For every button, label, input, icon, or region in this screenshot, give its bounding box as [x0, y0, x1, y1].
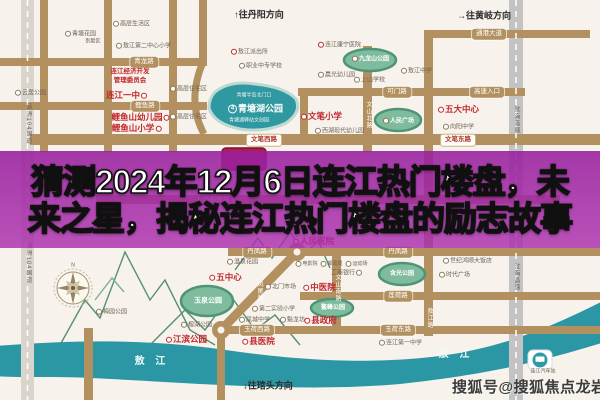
poi-label: 北门市场 — [264, 284, 296, 291]
poi-label: 高层住宅区 — [169, 86, 207, 93]
poi-badge-icon — [170, 86, 176, 92]
poi-label: 温泉花园 — [226, 259, 258, 266]
poi-badge-icon — [320, 261, 326, 267]
road-label-vertical: 沈海高速 — [513, 263, 519, 291]
road-label-vertical: 文山北路 — [365, 101, 371, 129]
poi-badge-icon — [315, 128, 321, 134]
poi-label: 连江第一中学 — [378, 340, 422, 347]
poi-badge-icon — [318, 42, 324, 48]
road-pill: 青龙路 — [130, 57, 158, 68]
poi-label: 鳌峰公园 — [321, 305, 345, 311]
poi-label: 文笔小学 — [300, 112, 342, 121]
poi-label: 连江一中 — [106, 91, 148, 100]
poi-label: 西湖现代幼儿园 — [314, 128, 364, 135]
poi-label: 梅园公园 — [95, 309, 127, 316]
poi-label: 敖江第二中心小学 — [115, 43, 171, 50]
poi-label: 连江经济开发 — [111, 69, 150, 76]
road-pill: 文笔东路 — [440, 134, 476, 147]
poi-badge-icon — [443, 124, 449, 130]
poi-label: 青塘花园 — [64, 31, 96, 38]
road-label-vertical: 凤尾路 — [256, 281, 262, 302]
road-pill: 鲤鱼路 — [131, 101, 159, 112]
road-label-vertical: 瀛洲104国道 — [25, 103, 31, 144]
poi-label: 玉泉公园 — [194, 298, 222, 305]
poi-badge-icon — [209, 275, 215, 281]
poi-label: 时代广场 — [438, 272, 470, 279]
poi-label: 江滨公园 — [165, 335, 207, 344]
poi-label: 中医院 — [302, 283, 336, 292]
poi-badge-icon — [181, 322, 187, 328]
poi-badge-icon — [383, 118, 389, 124]
poi-badge-icon — [116, 43, 122, 49]
poi-label: 五大中心 — [437, 105, 479, 114]
poi-label: 人民广场 — [382, 118, 414, 125]
poi-label: 别墅区 — [85, 40, 100, 45]
road-pill: 通港大道 — [472, 29, 506, 40]
poi-badge-icon — [65, 31, 71, 37]
poi-label: 敖江派出所 — [230, 49, 268, 56]
poi-label: 管理委员会 — [114, 78, 147, 85]
poi-badge-icon — [15, 90, 21, 96]
river-label: 敖 江 — [439, 350, 474, 360]
poi-badge-icon — [155, 126, 161, 132]
poi-badge-icon — [170, 114, 176, 120]
road-pill: 可门路 — [383, 87, 411, 98]
poi-badge-icon — [379, 340, 385, 346]
direction-label: ↓往琯头方向 — [243, 382, 293, 391]
road-pill: 高速入口 — [470, 87, 504, 98]
poi-badge-icon — [231, 49, 237, 55]
poi-badge-icon — [354, 77, 360, 83]
poi-badge-icon — [318, 72, 324, 78]
poi-label: 鲤鱼山小学 — [112, 124, 163, 133]
poi-label: 含光公园 — [390, 271, 414, 277]
poi-badge-icon — [96, 309, 102, 315]
poi-label: 青塘湖驿站文创园 — [229, 119, 269, 124]
poi-label: 职业中专学校 — [238, 63, 282, 70]
poi-label: 连江汽车站 — [530, 370, 555, 375]
poi-label: 鲤鱼山幼儿园 — [111, 113, 170, 122]
poi-label: 高层住宅区 — [169, 114, 207, 121]
poi-label: 高层生活区 — [112, 21, 150, 28]
river-label: 敖 江 — [135, 357, 170, 367]
poi-badge-icon — [356, 270, 362, 276]
poi-label: 魁龙坊 — [279, 317, 305, 324]
poi-label: 晨光幼儿园 — [317, 72, 355, 79]
road-pill: 玉荷西路 — [240, 325, 274, 336]
poi-label: 凤城中学 — [238, 317, 270, 324]
poi-label: 敖江中学 — [400, 68, 432, 75]
poi-badge-icon — [265, 284, 271, 290]
poi-badge-icon — [239, 63, 245, 69]
sohu-watermark: 搜狐号@搜狐焦点龙岩站 — [452, 376, 600, 397]
poi-label: 世纪鸿顺大饭店 — [442, 258, 492, 265]
poi-label: 4青塘湖公园 — [227, 104, 283, 113]
poi-badge-icon — [141, 93, 147, 99]
road-pill: 文笔西路 — [246, 134, 282, 147]
poi-label: 运动场 — [344, 261, 367, 267]
poi-label: 云居公园 — [14, 90, 46, 97]
poi-label: 工商银行 — [331, 270, 363, 277]
overlay-banner: 猜测2024年12月6日连江热门楼盘，未 来之星，揭秘连江热门楼盘的励志故事 — [0, 151, 600, 248]
poi-label: 县政府 — [303, 316, 337, 325]
poi-badge-icon — [295, 261, 301, 267]
road-label-vertical: 沈海高速 — [513, 106, 519, 134]
poi-badge-icon — [239, 317, 245, 323]
banner-title-line2: 来之星，揭秘连江热门楼盘的励志故事 — [28, 200, 572, 237]
poi-label: 青塘半岛北门口 — [236, 94, 271, 99]
poi-label: 九龙山公园 — [351, 56, 389, 63]
poi-badge-icon — [166, 337, 172, 343]
direction-label: ↑往丹阳方向 — [234, 11, 284, 20]
poi-label: 五中心 — [208, 273, 242, 282]
poi-badge-icon — [443, 258, 449, 264]
road-pill: 丹凤路 — [243, 247, 271, 258]
poi-label: 向阳中学 — [442, 124, 474, 131]
poi-badge-icon — [252, 306, 258, 312]
poi-badge-icon — [301, 114, 307, 120]
poi-badge-icon — [227, 259, 233, 265]
road-pill: 玉荷东路 — [381, 325, 415, 336]
road-pill: 丹凤路 — [384, 247, 412, 258]
poi-badge-icon — [242, 339, 248, 345]
poi-badge-icon — [345, 261, 351, 267]
poi-label: 电影院 — [294, 261, 317, 267]
poi-badge-icon — [304, 318, 310, 324]
banner-title-line1: 猜测2024年12月6日连江热门楼盘，未 — [31, 163, 568, 200]
poi-badge-icon — [438, 107, 444, 113]
poi-badge-icon — [303, 285, 309, 291]
poi-badge-icon — [352, 56, 358, 62]
poi-label: N — [71, 264, 75, 269]
lianjiang-map-screenshot: 青龙路鲤鱼路通港大道可门路高速入口马祖西路马祖路丹凤路丹凤路莲荷路玉荷西路玉荷东… — [0, 0, 600, 400]
poi-label: 第二实验小学 — [251, 306, 295, 313]
poi-badge-icon — [439, 272, 445, 278]
poi-badge-icon — [113, 21, 119, 27]
road-label-vertical: 瀛洲104国道 — [25, 242, 31, 283]
poi-badge-icon: 4 — [228, 105, 237, 114]
poi-badge-icon — [401, 68, 407, 74]
poi-label: 连江康宁医院 — [317, 42, 361, 49]
direction-label: →往黄岐方向 — [457, 12, 511, 21]
poi-label: 邮政局 — [319, 261, 342, 267]
poi-label: 县医院 — [241, 337, 275, 346]
road-label-vertical: 敖江路 — [426, 308, 432, 329]
poi-label: 上山学校 — [353, 77, 385, 84]
road-pill: 莲荷路 — [384, 291, 412, 302]
poi-badge-icon — [280, 317, 286, 323]
poi-label: 榕湖公园 — [180, 322, 212, 329]
